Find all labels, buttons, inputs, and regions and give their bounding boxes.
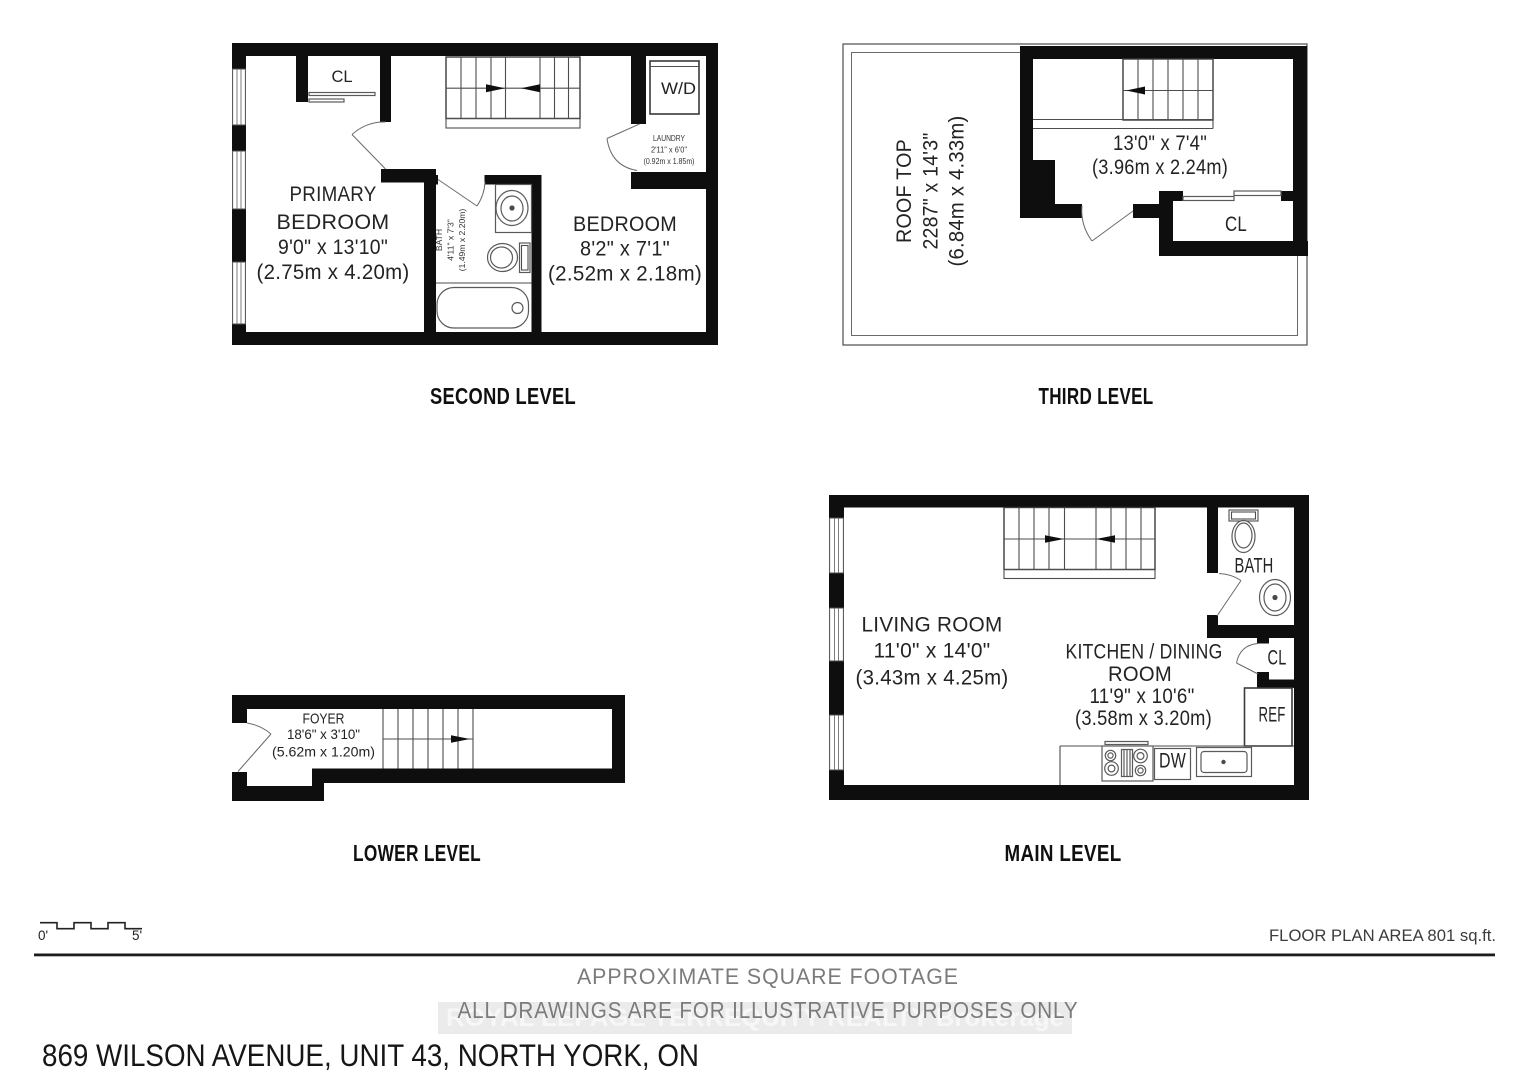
svg-text:BATH: BATH [1235,554,1274,578]
svg-text:(1.49m x 2.20m): (1.49m x 2.20m) [457,209,467,272]
svg-text:REF: REF [1259,703,1286,727]
svg-text:11'0" x 14'0": 11'0" x 14'0" [874,639,991,663]
svg-text:9'0" x 13'10": 9'0" x 13'10" [278,235,388,259]
svg-text:(3.58m x 3.20m): (3.58m x 3.20m) [1075,706,1212,730]
svg-text:ROOM: ROOM [1108,662,1172,686]
svg-text:ROOF TOP: ROOF TOP [892,139,916,243]
svg-text:W/D: W/D [661,80,696,98]
svg-text:ALL DRAWINGS ARE FOR ILLUSTRAT: ALL DRAWINGS ARE FOR ILLUSTRATIVE PURPOS… [458,997,1079,1023]
svg-text:(6.84m x 4.33m): (6.84m x 4.33m) [945,116,969,267]
svg-text:KITCHEN / DINING: KITCHEN / DINING [1066,640,1223,664]
svg-text:FOYER: FOYER [303,711,345,728]
svg-text:0': 0' [38,928,48,943]
svg-text:BEDROOM: BEDROOM [573,212,677,236]
svg-text:SECOND LEVEL: SECOND LEVEL [430,383,576,409]
svg-text:BATH: BATH [434,229,444,251]
svg-text:2'11" x 6'0": 2'11" x 6'0" [651,145,687,155]
svg-text:DW: DW [1159,749,1186,773]
svg-text:(5.62m x 1.20m): (5.62m x 1.20m) [272,744,375,760]
svg-text:FLOOR PLAN AREA 801 sq.ft.: FLOOR PLAN AREA 801 sq.ft. [1269,927,1496,945]
svg-text:8'2" x 7'1": 8'2" x 7'1" [580,237,670,261]
svg-text:CL: CL [331,68,352,86]
svg-text:(2.52m x 2.18m): (2.52m x 2.18m) [548,262,702,286]
svg-text:2287" x 14'3": 2287" x 14'3" [919,133,943,250]
svg-text:5': 5' [132,928,142,943]
svg-text:APPROXIMATE SQUARE FOOTAGE: APPROXIMATE SQUARE FOOTAGE [577,964,959,989]
svg-text:MAIN LEVEL: MAIN LEVEL [1005,840,1122,866]
svg-text:CL: CL [1268,646,1287,670]
svg-text:11'9" x 10'6": 11'9" x 10'6" [1090,684,1195,708]
svg-text:13'0" x 7'4": 13'0" x 7'4" [1113,131,1207,155]
svg-text:LAUNDRY: LAUNDRY [653,133,685,143]
svg-text:CL: CL [1225,212,1247,236]
svg-text:LOWER LEVEL: LOWER LEVEL [353,840,481,866]
svg-text:THIRD LEVEL: THIRD LEVEL [1039,383,1154,409]
svg-text:4'11" x 7'3": 4'11" x 7'3" [446,219,456,261]
svg-text:LIVING ROOM: LIVING ROOM [862,613,1003,637]
svg-text:18'6" x 3'10": 18'6" x 3'10" [287,726,360,742]
svg-text:PRIMARY: PRIMARY [290,182,377,206]
svg-text:869 WILSON AVENUE, UNIT 43, NO: 869 WILSON AVENUE, UNIT 43, NORTH YORK, … [42,1037,699,1073]
svg-text:BEDROOM: BEDROOM [277,210,390,234]
svg-text:(3.43m x 4.25m): (3.43m x 4.25m) [856,666,1009,690]
svg-text:(2.75m x 4.20m): (2.75m x 4.20m) [257,260,410,284]
svg-text:(3.96m x 2.24m): (3.96m x 2.24m) [1092,155,1228,179]
svg-text:(0.92m x 1.85m): (0.92m x 1.85m) [644,156,695,166]
